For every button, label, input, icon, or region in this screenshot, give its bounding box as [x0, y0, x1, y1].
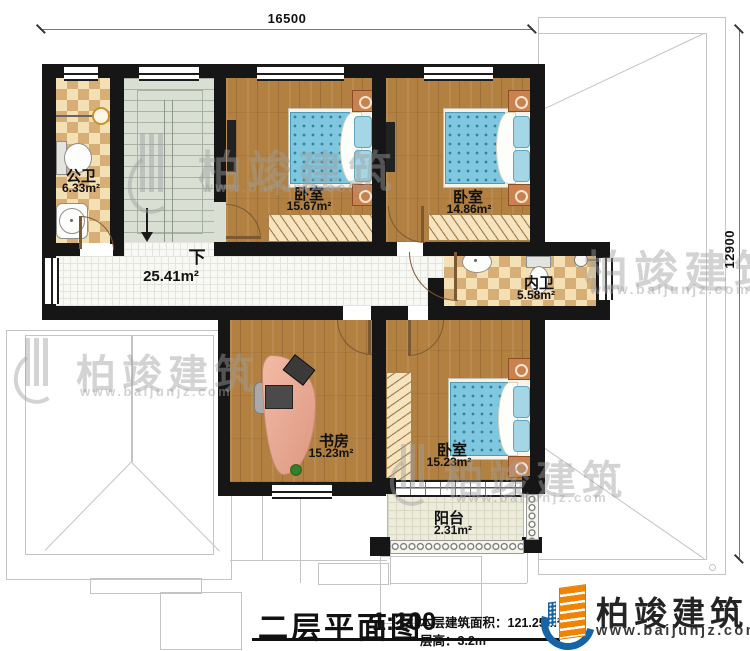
pillow: [513, 116, 530, 148]
sink-drain: [70, 219, 73, 222]
door-leaf: [421, 206, 424, 242]
door-leaf: [79, 216, 82, 249]
room-area-hallway: 25.41m²: [143, 268, 199, 285]
room-area-balcony: 2.31m²: [434, 523, 472, 537]
floor-stair-landing: [214, 202, 226, 242]
window: [424, 65, 493, 81]
room-area-public-bath: 6.33m²: [62, 181, 100, 195]
site-line: [230, 560, 387, 561]
brand-url-text: www.baijunjz.com: [596, 623, 750, 639]
wall-segment: [110, 78, 124, 244]
logo-dot-bar-shape: [548, 601, 556, 626]
wall-segment: [443, 306, 610, 320]
pillow: [513, 150, 530, 182]
door-leaf: [226, 236, 260, 239]
wall-segment: [42, 243, 80, 256]
towel-ring-icon: [92, 107, 110, 125]
wall-segment: [530, 64, 545, 242]
watermark-url-text: www.baijunjz.com: [202, 179, 363, 195]
sink-drain: [474, 259, 477, 262]
watermark-logo-icon: [390, 444, 438, 506]
dimension-line-top: [40, 29, 533, 30]
dimension-width-label: 16500: [268, 11, 307, 26]
plant-icon: [290, 464, 302, 476]
watermark-url-text: www.baijunjz.com: [456, 490, 608, 505]
watermark-logo-icon: [14, 338, 64, 404]
wall-segment: [386, 242, 397, 256]
watermark-logo-icon: [128, 134, 182, 214]
window: [139, 65, 199, 81]
window: [272, 483, 332, 499]
site-line: [390, 553, 391, 585]
room-area-bedroom-1: 15.67m²: [287, 199, 332, 213]
site-line: [527, 553, 528, 583]
nightstand: [508, 90, 532, 112]
roof-dot: [709, 564, 716, 571]
window: [43, 258, 59, 304]
wall-segment: [113, 243, 124, 256]
room-area-bedroom-2: 14.86m²: [447, 202, 492, 216]
floor-height-text: 层高：3.2m: [420, 630, 486, 649]
wall-segment: [370, 537, 390, 556]
watermark-url-text: www.baijunjz.com: [590, 281, 750, 297]
wardrobe: [268, 214, 374, 242]
wall-segment: [218, 306, 230, 496]
site-line: [262, 496, 263, 560]
site-line: [390, 583, 527, 584]
logo-building-shape: [559, 584, 586, 640]
door-leaf: [454, 252, 457, 300]
room-area-ensuite-bath: 5.58m²: [517, 288, 555, 302]
room-area-study: 15.23m²: [309, 446, 354, 460]
floor-plan-canvas: 公卫 6.33m² 卧室 15.67m² 卧室 14.86m² 内卫 5.58m…: [0, 0, 750, 651]
monitor-icon: [265, 385, 293, 409]
towel-bar: [56, 115, 94, 117]
nightstand: [508, 184, 532, 206]
pillow: [513, 386, 530, 418]
stair-direction-arrow-head: [141, 232, 153, 242]
site-step-outline: [160, 592, 242, 650]
site-step-outline: [318, 563, 389, 585]
wall-segment: [372, 306, 386, 496]
wall-segment: [42, 306, 343, 320]
wall-segment: [214, 242, 386, 256]
door-leaf: [368, 320, 371, 354]
balcony-railing: [390, 540, 524, 554]
door-leaf: [408, 320, 411, 355]
watermark-url-text: www.baijunjz.com: [80, 384, 232, 399]
floor-hallway: [56, 256, 428, 306]
wardrobe: [428, 214, 532, 241]
window: [64, 65, 98, 81]
window: [257, 65, 344, 81]
brand-logo-icon: [540, 584, 592, 646]
nightstand: [508, 358, 532, 380]
site-line: [300, 496, 301, 583]
title-underline: [252, 638, 560, 641]
stairs-down-label: 下: [189, 243, 206, 268]
